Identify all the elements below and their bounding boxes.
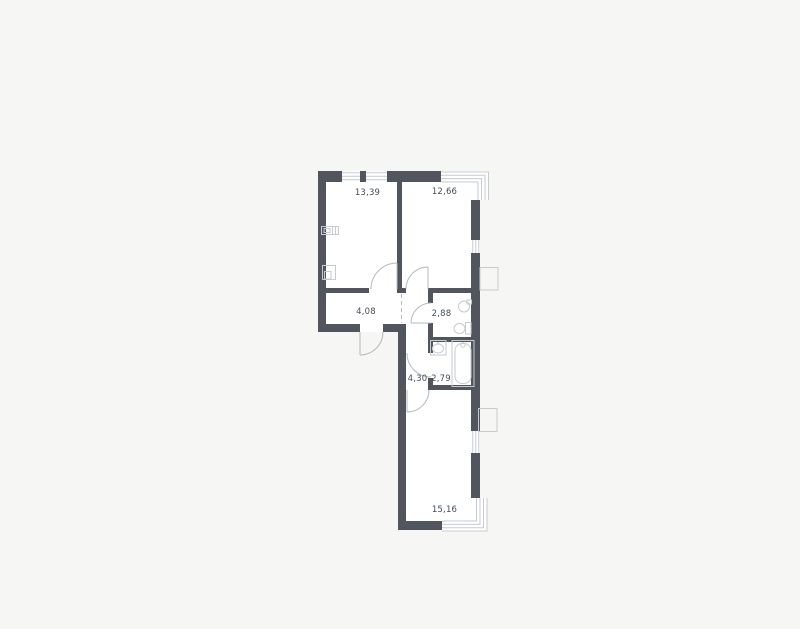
room-label-corridor: 4,30 bbox=[408, 374, 428, 384]
entrance-door-icon bbox=[360, 332, 383, 355]
wall-under-room-left bbox=[318, 288, 369, 293]
room-label-hallway: 4,08 bbox=[356, 307, 376, 317]
wall-left bbox=[318, 171, 326, 332]
wall-right-1 bbox=[471, 200, 480, 240]
room-label-top-left: 13,39 bbox=[355, 188, 380, 198]
room-label-top-right: 12,66 bbox=[432, 187, 457, 197]
ac-basket-top-icon bbox=[480, 268, 498, 291]
wall-lower-left bbox=[398, 324, 406, 530]
wall-band-bottom bbox=[429, 385, 471, 390]
wall-wc-left-1 bbox=[428, 293, 433, 303]
wall-rooms-divider bbox=[397, 181, 402, 288]
wall-top-stub bbox=[360, 171, 366, 182]
floorplan-canvas: 13,39 12,66 4,08 2,88 4,30 2,79 15,16 bbox=[0, 0, 800, 629]
room-label-bottom: 15,16 bbox=[432, 505, 457, 515]
wall-bottom bbox=[398, 521, 442, 530]
room-label-wc: 2,88 bbox=[432, 309, 452, 319]
wall-mid-stub bbox=[397, 288, 406, 293]
floorplan-svg: 13,39 12,66 4,08 2,88 4,30 2,79 15,16 bbox=[0, 0, 800, 629]
wall-under-room-right bbox=[428, 288, 471, 293]
room-label-bathroom: 2,79 bbox=[431, 374, 451, 384]
wall-right-2 bbox=[471, 253, 480, 431]
wall-hall-bottom-1 bbox=[318, 324, 360, 332]
ac-basket-bottom-icon bbox=[479, 409, 498, 432]
floor-lower-band bbox=[398, 288, 480, 530]
wall-right-3 bbox=[471, 453, 480, 498]
wall-top-2 bbox=[387, 171, 441, 182]
